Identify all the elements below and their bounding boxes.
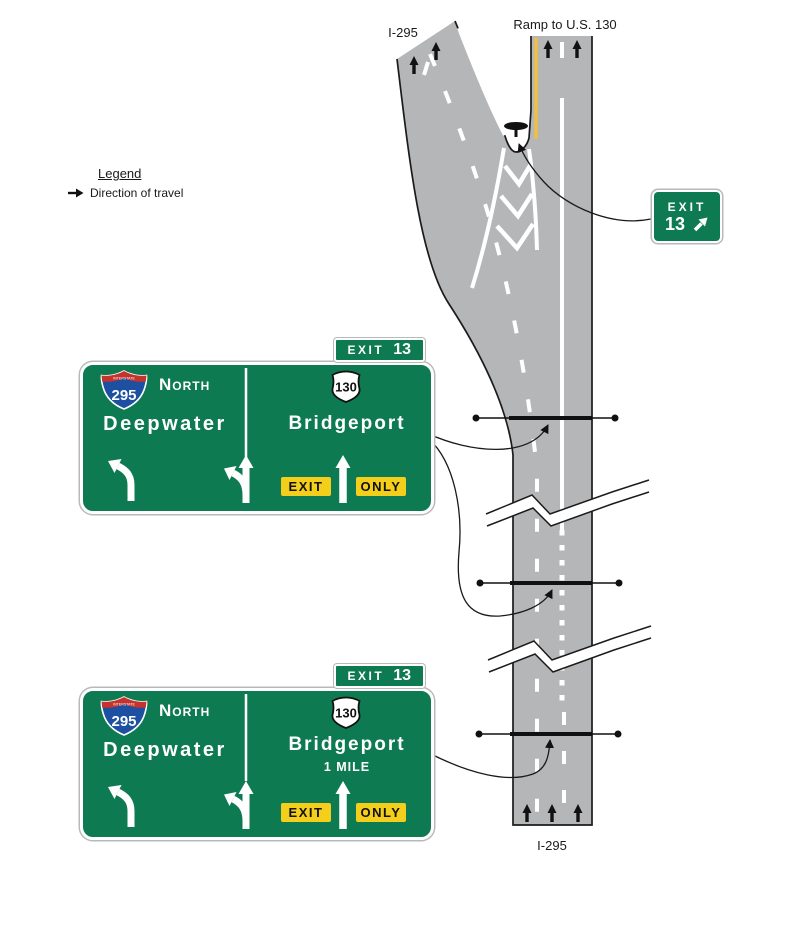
mainline-label: I-295	[388, 25, 418, 40]
only-plaque: ONLY	[356, 477, 406, 496]
exit-only-up-arrow	[336, 781, 351, 829]
exit-tab-number: 13	[393, 667, 411, 685]
exit-gore-sign: EXIT 13	[652, 190, 722, 243]
cardinal-direction: North	[159, 375, 210, 395]
direction-of-travel-arrow-icon	[68, 188, 84, 198]
us-shield-number: 130	[335, 706, 357, 721]
exit-plaque: EXIT	[281, 803, 331, 822]
guide-sign-exit: EXIT 13 INTERSTATE 295 North Deepwater 1…	[80, 362, 434, 514]
exit-gore-sign-number: 13	[665, 215, 685, 233]
bottom-road-label: I-295	[537, 838, 567, 853]
interstate-shield-number: 295	[111, 713, 136, 730]
interstate-295-shield: INTERSTATE 295	[100, 696, 148, 736]
distance-label: 1 MILE	[264, 760, 430, 774]
legend: Legend Direction of travel	[68, 166, 183, 200]
destination-deepwater: Deepwater	[85, 413, 245, 436]
us-shield-number: 130	[335, 380, 357, 395]
exit-tab-word: EXIT	[348, 343, 385, 357]
ramp-label: Ramp to U.S. 130	[513, 17, 616, 32]
guide-sign-advance: EXIT 13 INTERSTATE 295 North Deepwater 1…	[80, 688, 434, 840]
exit-only-up-arrow	[336, 455, 351, 503]
interstate-shield-label: INTERSTATE	[113, 377, 135, 381]
gore-sign-symbol	[504, 122, 528, 137]
destination-deepwater: Deepwater	[85, 739, 245, 762]
split-lane-arrow	[224, 781, 254, 829]
interstate-295-shield: INTERSTATE 295	[100, 370, 148, 410]
us-130-shield: 130	[329, 369, 363, 405]
cardinal-direction: North	[159, 701, 210, 721]
only-plaque: ONLY	[356, 803, 406, 822]
interstate-shield-label: INTERSTATE	[113, 703, 135, 707]
legend-item: Direction of travel	[68, 186, 183, 200]
legend-title: Legend	[68, 166, 183, 181]
interchange-signing-diagram: I-295 Ramp to U.S. 130 I-295 Legend Dire…	[0, 0, 800, 931]
legend-item-label: Direction of travel	[90, 186, 183, 200]
us-130-shield: 130	[329, 695, 363, 731]
curved-left-arrow	[108, 459, 131, 501]
destination-bridgeport: Bridgeport	[264, 413, 430, 435]
exit-tab-number: 13	[393, 341, 411, 359]
interstate-shield-number: 295	[111, 387, 136, 404]
exit-tab: EXIT 13	[334, 338, 425, 362]
destination-bridgeport: Bridgeport	[264, 734, 430, 756]
exit-gore-sign-word: EXIT	[668, 200, 707, 214]
exit-plaque: EXIT	[281, 477, 331, 496]
split-lane-arrow	[224, 455, 254, 503]
exit-tab-word: EXIT	[348, 669, 385, 683]
diagonal-up-right-arrow-icon	[692, 216, 709, 233]
curved-left-arrow	[108, 785, 131, 827]
exit-tab: EXIT 13	[334, 664, 425, 688]
